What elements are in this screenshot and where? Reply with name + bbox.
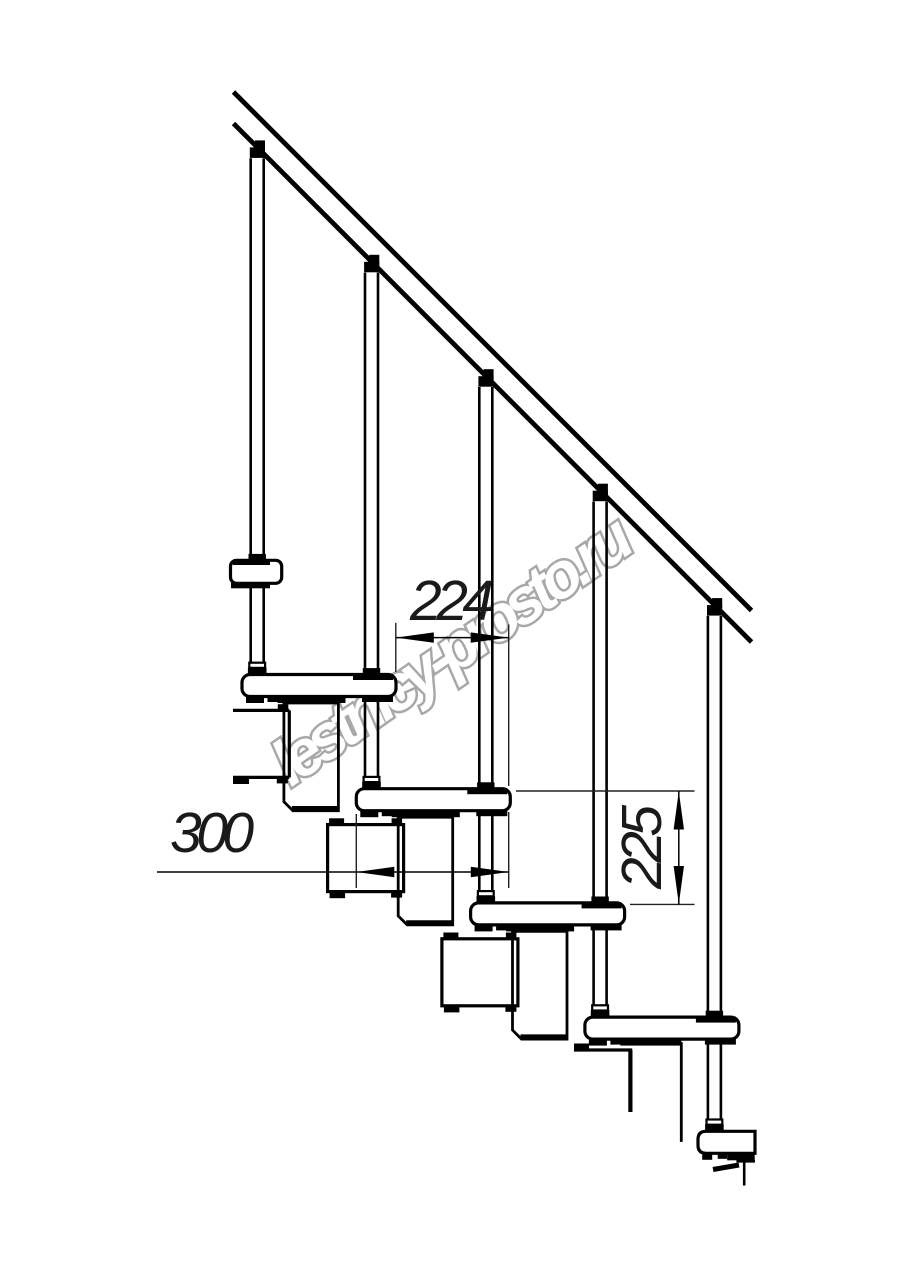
- svg-text:300: 300: [170, 801, 254, 865]
- svg-text:225: 225: [610, 805, 674, 890]
- svg-text:224: 224: [409, 569, 492, 633]
